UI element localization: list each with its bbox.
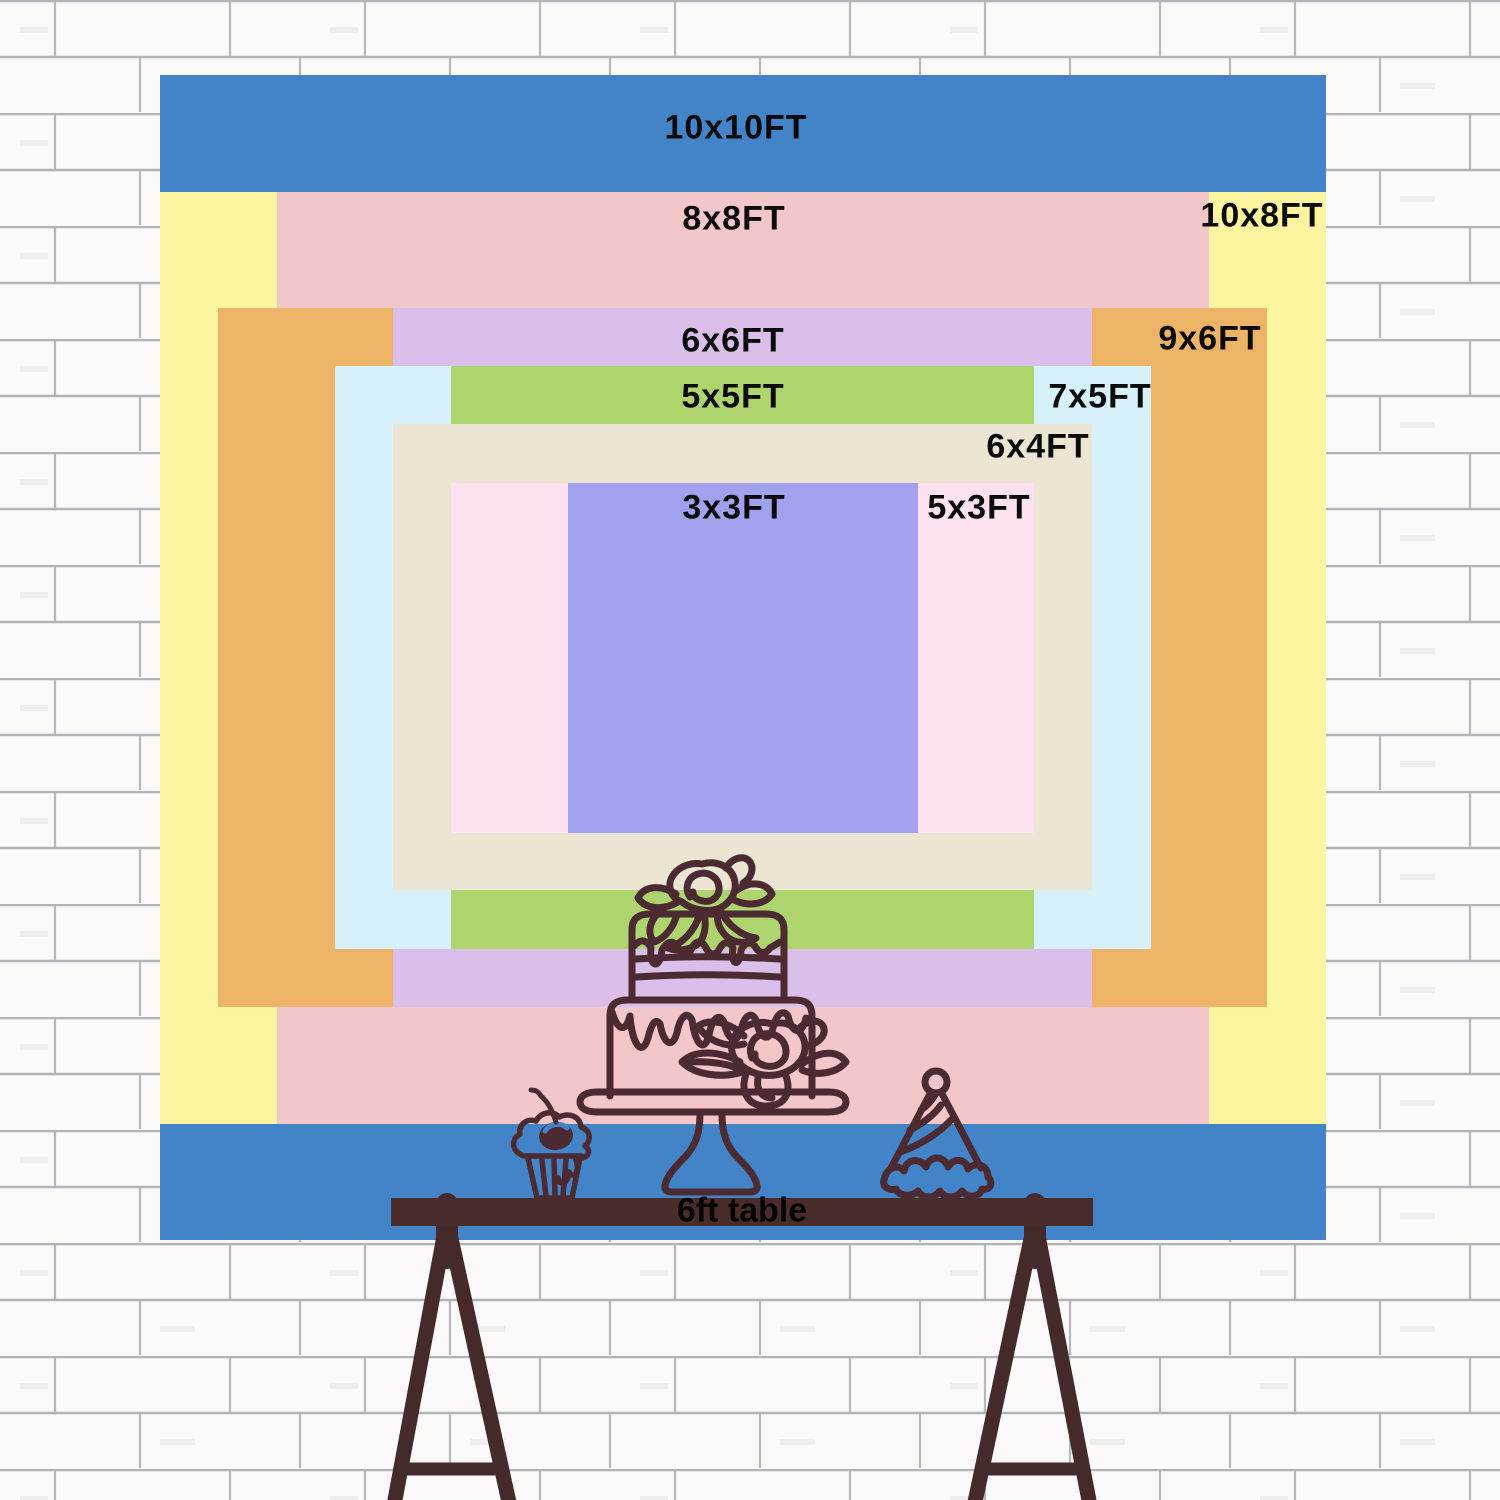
party-hat-icon bbox=[884, 1071, 991, 1197]
table-label: 6ft table bbox=[677, 1192, 807, 1231]
size-label-6x4ft: 6x4FT bbox=[986, 428, 1089, 467]
size-label-8x8ft: 8x8FT bbox=[682, 200, 785, 239]
size-label-3x3ft: 3x3FT bbox=[682, 489, 785, 528]
size-label-6x6ft: 6x6FT bbox=[681, 322, 784, 361]
size-label-9x6ft: 9x6FT bbox=[1158, 320, 1261, 359]
size-label-5x3ft: 5x3FT bbox=[927, 489, 1030, 528]
size-label-10x8ft: 10x8FT bbox=[1200, 197, 1323, 236]
tiered-cake-icon bbox=[580, 858, 846, 1192]
size-label-5x5ft: 5x5FT bbox=[681, 378, 784, 417]
table-legs bbox=[392, 1204, 1092, 1500]
size-label-10x10ft: 10x10FT bbox=[664, 109, 807, 148]
size-label-7x5ft: 7x5FT bbox=[1048, 378, 1151, 417]
backdrop-size-chart: 10x10FT 10x8FT 8x8FT 9x6FT 6x6FT 7x5FT 5… bbox=[0, 0, 1500, 1500]
